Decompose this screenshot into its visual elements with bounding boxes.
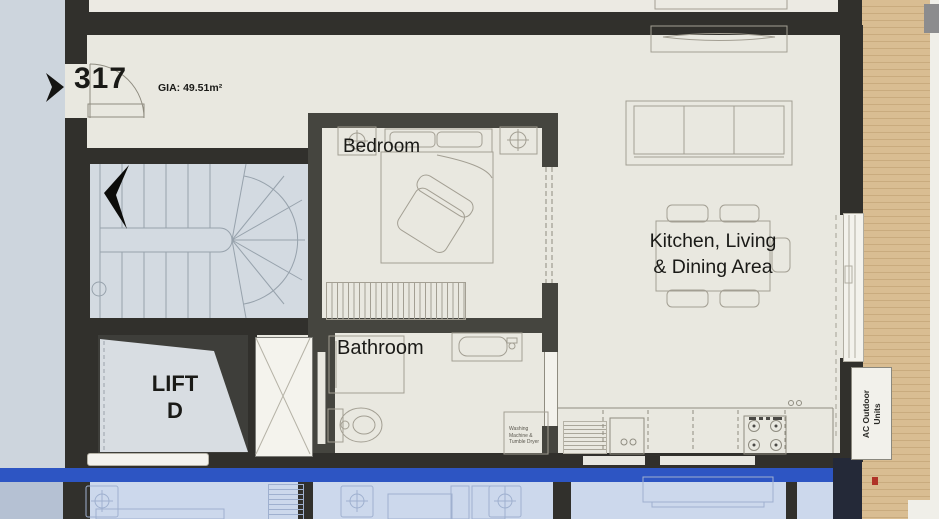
wall-lower-a — [63, 482, 90, 519]
ac-units-line1: AC Outdoor — [861, 389, 872, 437]
gia-label: GIA: 49.51m² — [158, 82, 222, 94]
bedroom-label: Bedroom — [343, 136, 420, 158]
living-label-line2: & Dining Area — [608, 254, 818, 280]
living-label: Kitchen, Living & Dining Area — [608, 228, 818, 280]
lift-threshold — [87, 453, 209, 466]
lower-floor — [65, 482, 862, 519]
wardrobe — [326, 282, 466, 320]
wall-lift-left — [65, 335, 98, 458]
lift-label-line2: D — [120, 397, 230, 424]
drainer — [563, 421, 607, 454]
lift-label: LIFT D — [120, 370, 230, 424]
kitchen-window-b — [660, 456, 755, 465]
sliding-door — [843, 213, 864, 362]
living-label-line1: Kitchen, Living — [608, 228, 818, 254]
washer-label: Washing Machine & Tumble Dryer — [509, 426, 547, 446]
deck-light-patch — [908, 500, 930, 519]
floor-plan: 317 GIA: 49.51m² Bedroom Bathroom Kitche… — [0, 0, 939, 519]
unit-number: 317 — [74, 62, 127, 96]
wall-right-upper — [840, 25, 863, 215]
wall-stair-bottom — [65, 318, 320, 335]
upper-unit-strip — [65, 0, 862, 12]
corridor-floor — [0, 0, 65, 470]
ac-units-label: AC Outdoor Units — [861, 389, 883, 437]
bathroom-label: Bathroom — [337, 337, 424, 360]
wall-hall-stair — [65, 148, 320, 164]
wall-bedroom-bathroom — [322, 318, 542, 333]
wall-bedroom-left — [308, 113, 322, 318]
wall-corner-lower-right — [833, 458, 862, 519]
wall-top-stub-right — [838, 0, 862, 12]
ac-units-box: AC Outdoor Units — [851, 367, 892, 460]
riser-box — [255, 337, 313, 457]
wall-bedroom-top — [322, 113, 558, 128]
lift-label-line1: LIFT — [120, 370, 230, 397]
band-red-mark — [872, 477, 878, 485]
washer-line3: Tumble Dryer — [509, 439, 547, 446]
wall-stair-left — [65, 164, 90, 320]
level-band — [0, 468, 862, 482]
wall-lower-c — [553, 482, 571, 519]
wall-top — [65, 12, 862, 35]
wall-bedroom-right-b — [542, 283, 558, 352]
bathroom-door — [544, 352, 558, 426]
deck-edge-strip — [930, 0, 939, 519]
gray-block — [924, 4, 939, 33]
wall-bedroom-right-a — [542, 113, 558, 167]
kitchen-window-a — [583, 456, 645, 465]
lower-radiator — [268, 484, 304, 519]
stairwell-floor — [90, 164, 308, 318]
wall-entry-upper — [65, 12, 87, 64]
wall-top-stub-left — [65, 0, 89, 12]
ac-units-line2: Units — [872, 389, 883, 437]
wall-lower-d — [786, 482, 797, 519]
riser-door — [317, 352, 326, 444]
corridor-floor-lower — [0, 482, 65, 519]
